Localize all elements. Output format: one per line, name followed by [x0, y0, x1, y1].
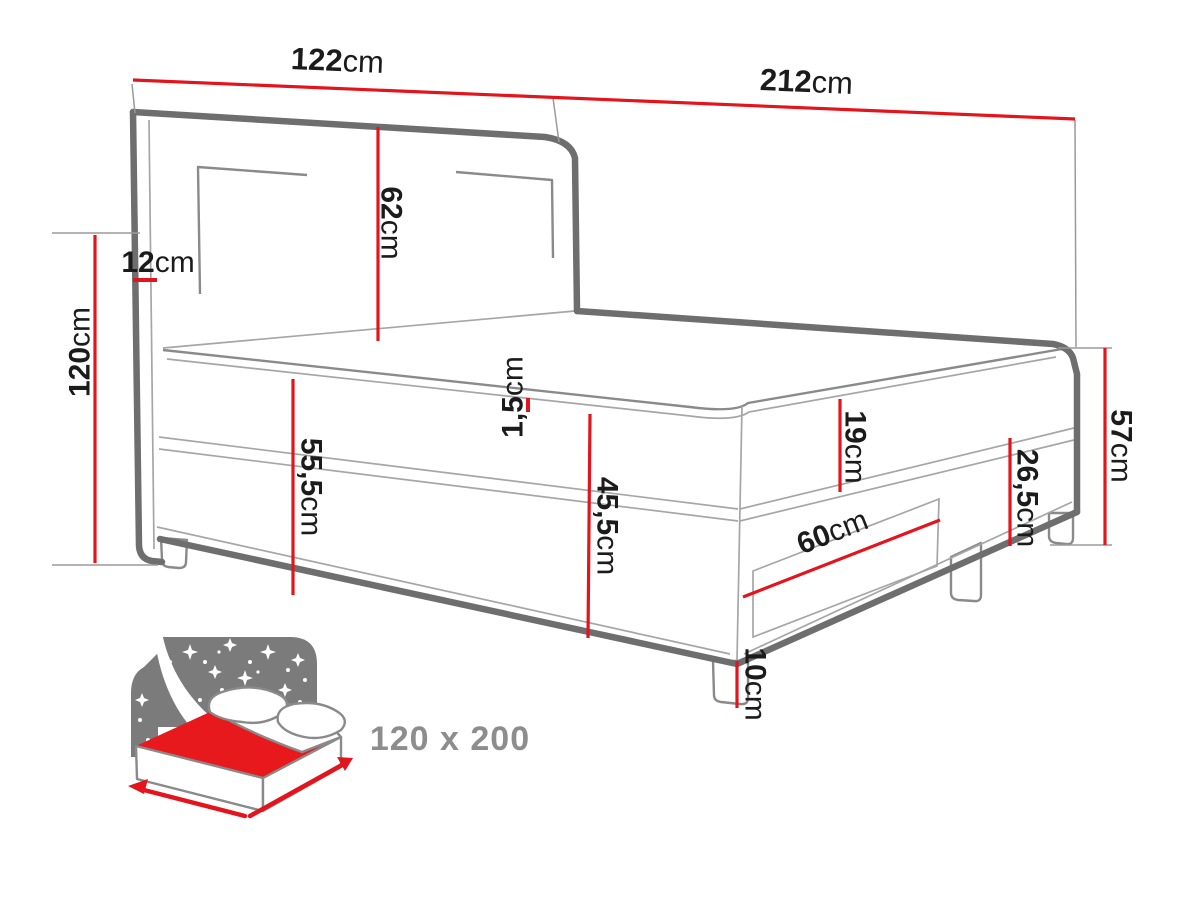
dim-label-headboard-above: 62cm	[375, 186, 408, 259]
dim-label-base-with-mattress: 45,5cm	[591, 477, 624, 575]
icon-pillow-left	[209, 687, 287, 722]
diagram-canvas: 122cm 212cm 120cm 12cm 62cm 1,5cm 55,5c	[0, 0, 1200, 899]
ext-line-top-left	[132, 84, 135, 113]
dim-label-side-height: 57cm	[1105, 409, 1138, 482]
bed-dimension-diagram: 122cm 212cm 120cm 12cm 62cm 1,5cm 55,5c	[0, 0, 1200, 899]
ext-line-212-end	[1075, 120, 1076, 347]
dim-line-122-212	[133, 80, 1075, 119]
dim-label-headboard-height: 120cm	[64, 307, 97, 397]
dim-label-base-box-height: 26,5cm	[1011, 449, 1044, 547]
dim-label-total-length: 212cm	[759, 62, 853, 101]
dim-label-headboard-width: 122cm	[290, 41, 384, 80]
dim-label-mattress-height: 19cm	[839, 410, 872, 483]
bed-side-face	[159, 351, 748, 664]
mattress-size-icon: 120 x 200	[128, 633, 530, 816]
ext-line-122-end	[553, 98, 559, 142]
bed-drawing	[133, 112, 1077, 704]
size-badge-label: 120 x 200	[370, 720, 530, 758]
dim-label-leg-height: 10cm	[739, 647, 772, 720]
dim-label-headboard-depth: 12cm	[121, 246, 194, 279]
dim-line-base-with-mattress	[588, 414, 590, 638]
dim-label-topper-seam: 1,5cm	[497, 356, 530, 438]
dim-label-height-without-legs: 55,5cm	[295, 438, 328, 536]
